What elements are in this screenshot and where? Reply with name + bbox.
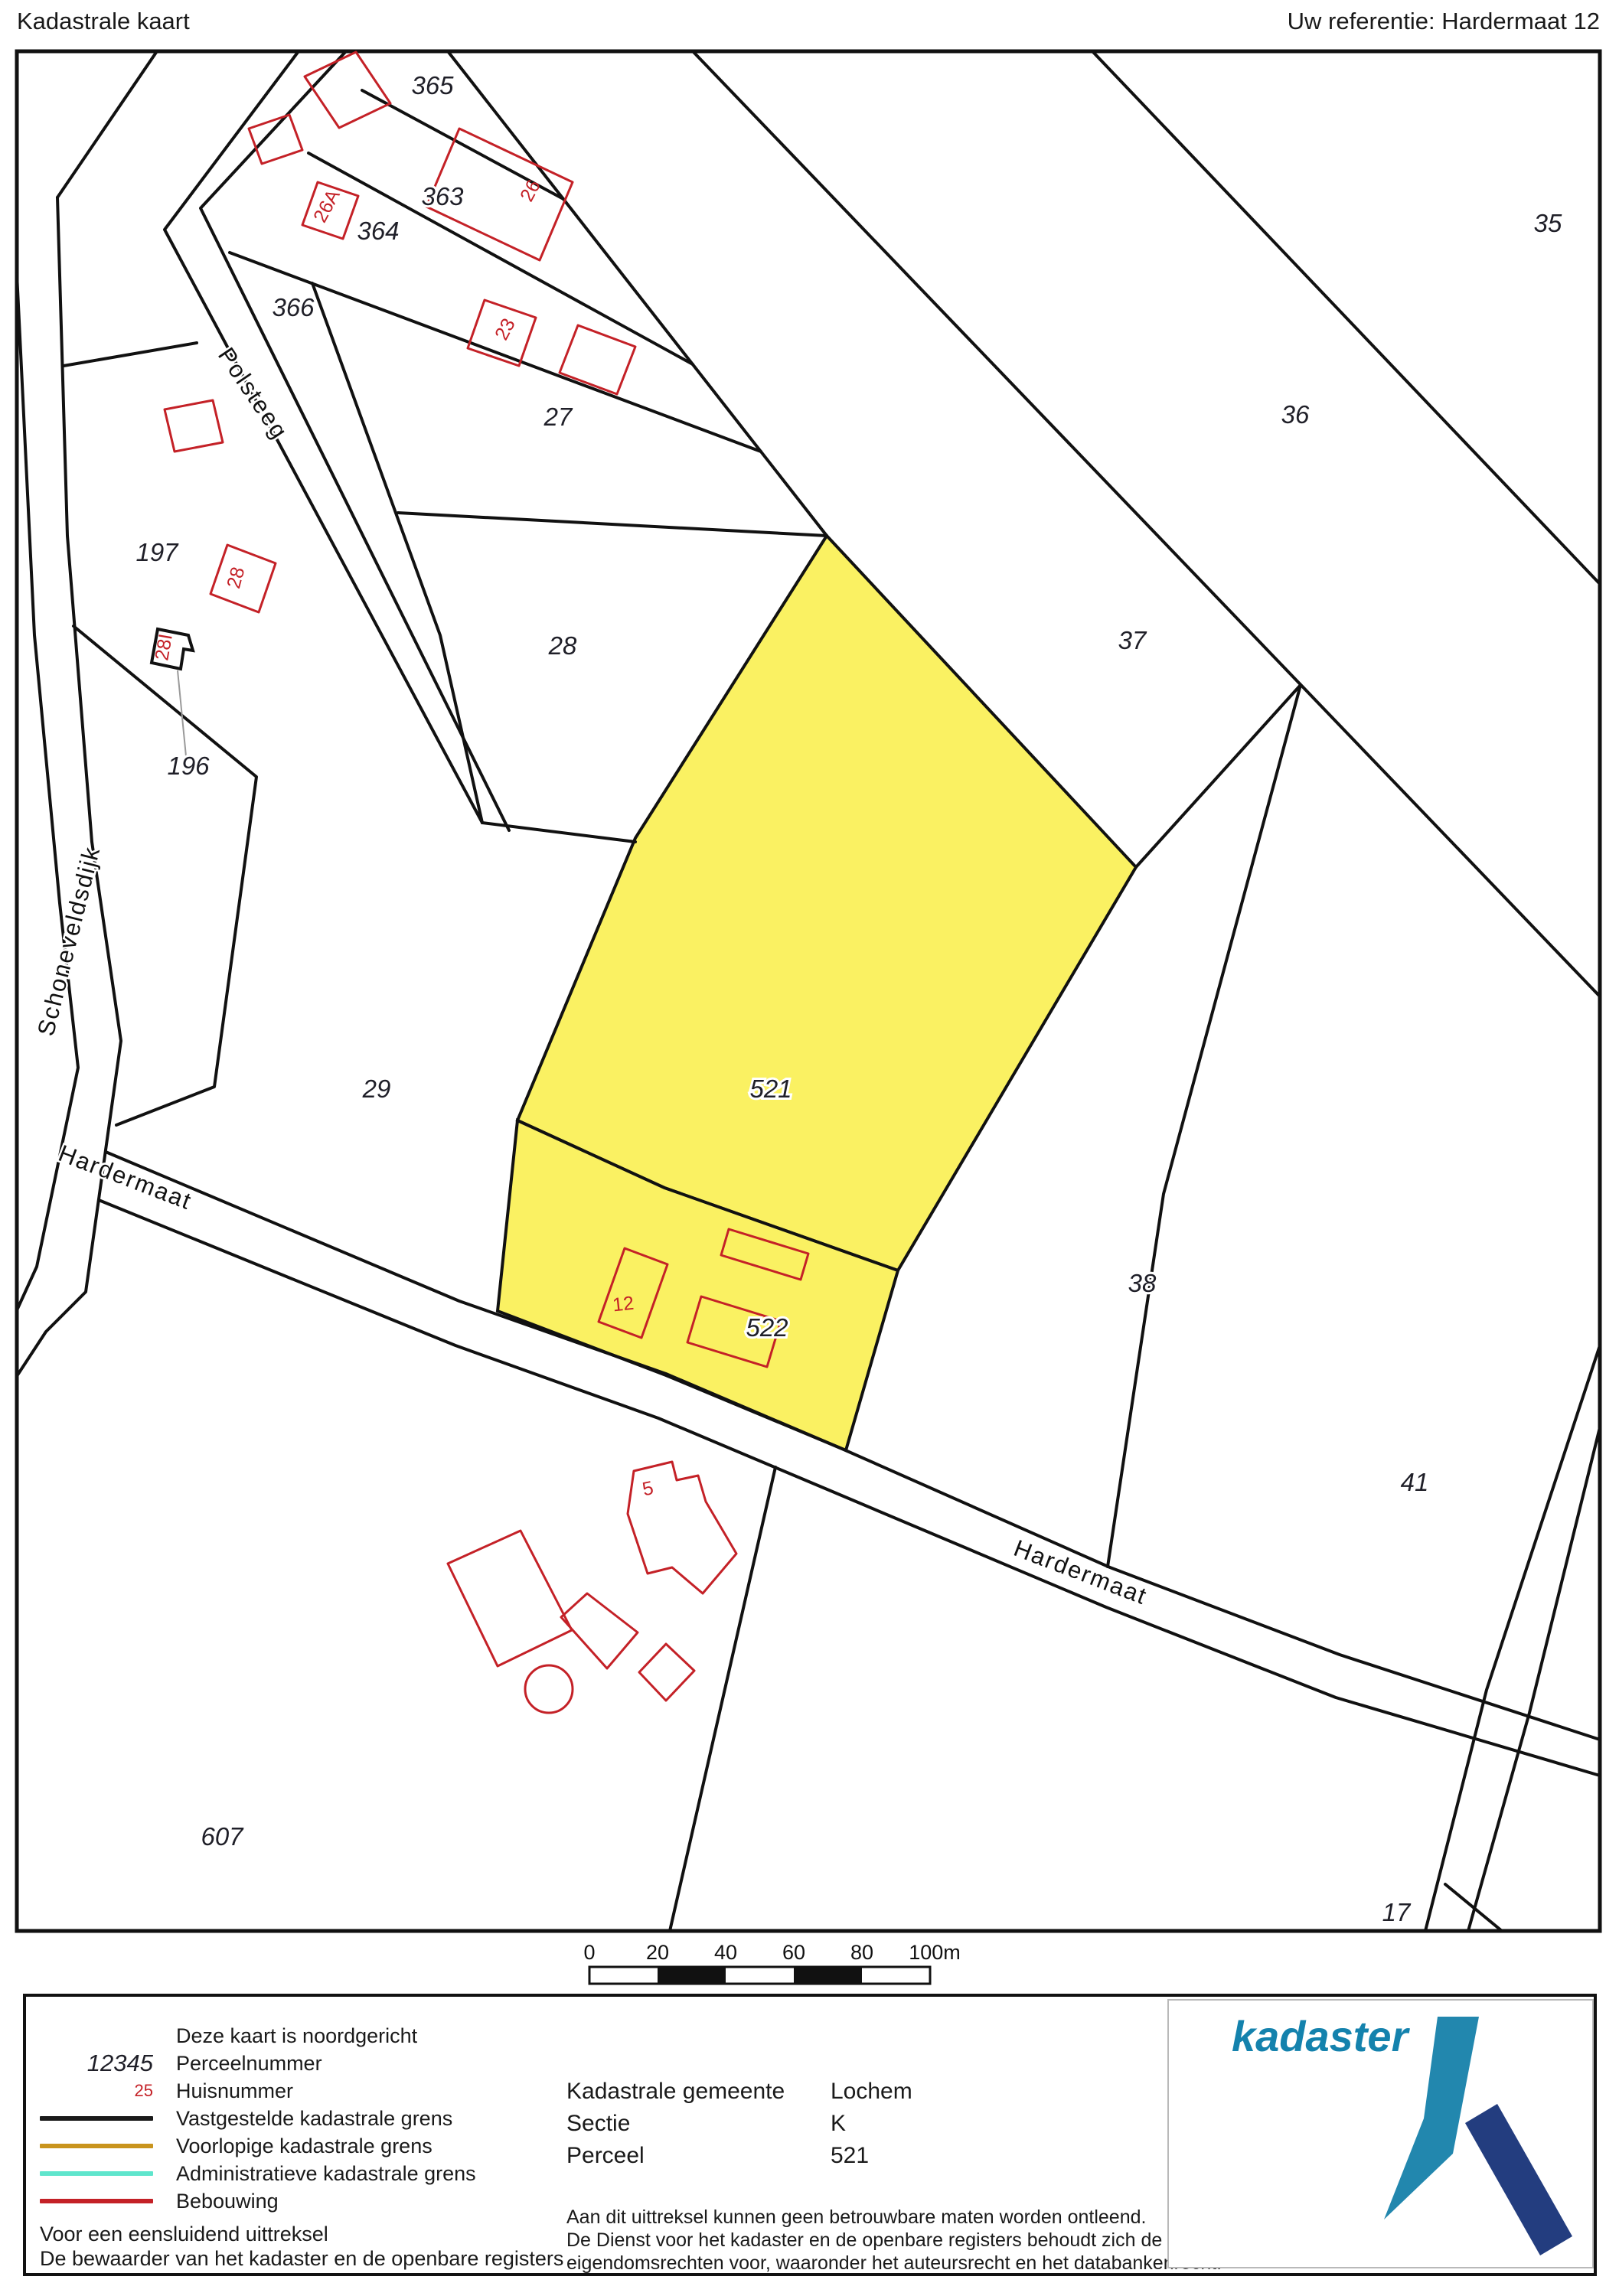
parcel-number-17: 17 [1382, 1898, 1412, 1926]
legend-label: Deze kaart is noordgericht [176, 2024, 417, 2048]
legend-row: Administratieve kadastrale grens [40, 2160, 514, 2187]
parcel-number-521: 521 [749, 1075, 792, 1103]
legend-line-sample [40, 2116, 153, 2121]
parcel-number-29: 29 [362, 1075, 391, 1103]
legend-row: Voorlopige kadastrale grens [40, 2132, 514, 2160]
parcel-number-197: 197 [135, 538, 179, 566]
parcel-number-364: 364 [357, 217, 399, 245]
legend-row: Bebouwing [40, 2187, 514, 2215]
parcel-number-366: 366 [272, 293, 315, 321]
legend-label: Bebouwing [176, 2190, 279, 2213]
info-row: Perceel521 [566, 2140, 912, 2172]
kadaster-logo-text: kadaster [1232, 2012, 1411, 2060]
legend-sample: 25 [40, 2081, 176, 2101]
legend-row: 25Huisnummer [40, 2077, 514, 2105]
legend-line-sample [40, 2144, 153, 2148]
info-label: Kadastrale gemeente [566, 2079, 831, 2105]
parcel-info: Kadastrale gemeenteLochemSectieKPerceel5… [566, 2076, 912, 2172]
info-value: K [831, 2111, 846, 2137]
legend-label: Huisnummer [176, 2079, 293, 2103]
info-row: SectieK [566, 2108, 912, 2140]
legend-label: Administratieve kadastrale grens [176, 2162, 476, 2186]
parcel-number-607: 607 [201, 1822, 244, 1851]
legend-line-swatch [40, 2171, 176, 2176]
scale-tick-40: 40 [714, 1941, 737, 1964]
legend-row: Deze kaart is noordgericht [40, 2022, 514, 2050]
disclaimer-line: Aan dit uittreksel kunnen geen betrouwba… [566, 2206, 1268, 2229]
cadastral-map: 3653633643662735363728197196295213852241… [0, 0, 1619, 2296]
disclaimer-line: eigendomsrechten voor, waaronder het aut… [566, 2252, 1268, 2275]
legend: Deze kaart is noordgericht12345Perceelnu… [40, 2022, 514, 2215]
parcel-number-37: 37 [1118, 626, 1147, 654]
legend-sample: 12345 [40, 2050, 176, 2077]
parcel-number-36: 36 [1281, 400, 1310, 429]
scale-tick-80: 80 [850, 1941, 873, 1964]
legend-row: 12345Perceelnummer [40, 2050, 514, 2077]
legend-house-number-sample: 25 [135, 2081, 153, 2101]
scale-bar-track [589, 1967, 930, 1984]
scale-bar-segment [658, 1967, 726, 1984]
house-number-28I: 28I [151, 632, 177, 662]
parcel-number-27: 27 [543, 403, 573, 431]
info-value: Lochem [831, 2079, 912, 2105]
legend-line-sample [40, 2199, 153, 2203]
legend-row: Vastgestelde kadastrale grens [40, 2105, 514, 2132]
legend-label: Vastgestelde kadastrale grens [176, 2107, 452, 2131]
attestation-line: De bewaarder van het kadaster en de open… [40, 2246, 563, 2271]
attestation-text: Voor een eensluidend uittrekselDe bewaar… [40, 2222, 563, 2271]
legend-parcel-number-sample: 12345 [87, 2050, 153, 2077]
scale-tick-60: 60 [782, 1941, 805, 1964]
legend-label: Voorlopige kadastrale grens [176, 2135, 432, 2158]
parcel-number-363: 363 [421, 182, 464, 210]
info-value: 521 [831, 2143, 869, 2169]
parcel-number-28: 28 [548, 631, 577, 660]
scale-bar: 020406080100m [583, 1941, 960, 1984]
info-row: Kadastrale gemeenteLochem [566, 2076, 912, 2108]
scale-tick-100m: 100m [909, 1941, 961, 1964]
parcel-number-365: 365 [411, 71, 454, 99]
scale-bar-labels: 020406080100m [583, 1941, 960, 1964]
parcel-number-35: 35 [1534, 209, 1562, 237]
legend-line-sample [40, 2171, 153, 2176]
scale-tick-20: 20 [646, 1941, 669, 1964]
scale-tick-0: 0 [583, 1941, 595, 1964]
cadastral-map-page: Kadastrale kaart Uw referentie: Harderma… [0, 0, 1619, 2296]
parcel-number-38: 38 [1128, 1269, 1157, 1297]
scale-bar-segment [794, 1967, 862, 1984]
kadaster-logo: kadaster [1169, 2001, 1595, 2270]
kadaster-logo-box: kadaster [1167, 1999, 1594, 2268]
parcel-number-196: 196 [167, 752, 210, 780]
info-label: Perceel [566, 2143, 831, 2169]
legend-line-swatch [40, 2199, 176, 2203]
legend-line-swatch [40, 2116, 176, 2121]
legend-label: Perceelnummer [176, 2052, 322, 2076]
legend-line-swatch [40, 2144, 176, 2148]
disclaimer-line: De Dienst voor het kadaster en de openba… [566, 2229, 1268, 2252]
house-number-12: 12 [612, 1293, 635, 1316]
parcel-number-41: 41 [1401, 1468, 1429, 1496]
info-label: Sectie [566, 2111, 831, 2137]
disclaimer-text: Aan dit uittreksel kunnen geen betrouwba… [566, 2206, 1268, 2275]
kadaster-logo-mark-dark [1465, 2104, 1572, 2255]
attestation-line: Voor een eensluidend uittreksel [40, 2222, 563, 2246]
parcel-number-522: 522 [746, 1313, 788, 1342]
